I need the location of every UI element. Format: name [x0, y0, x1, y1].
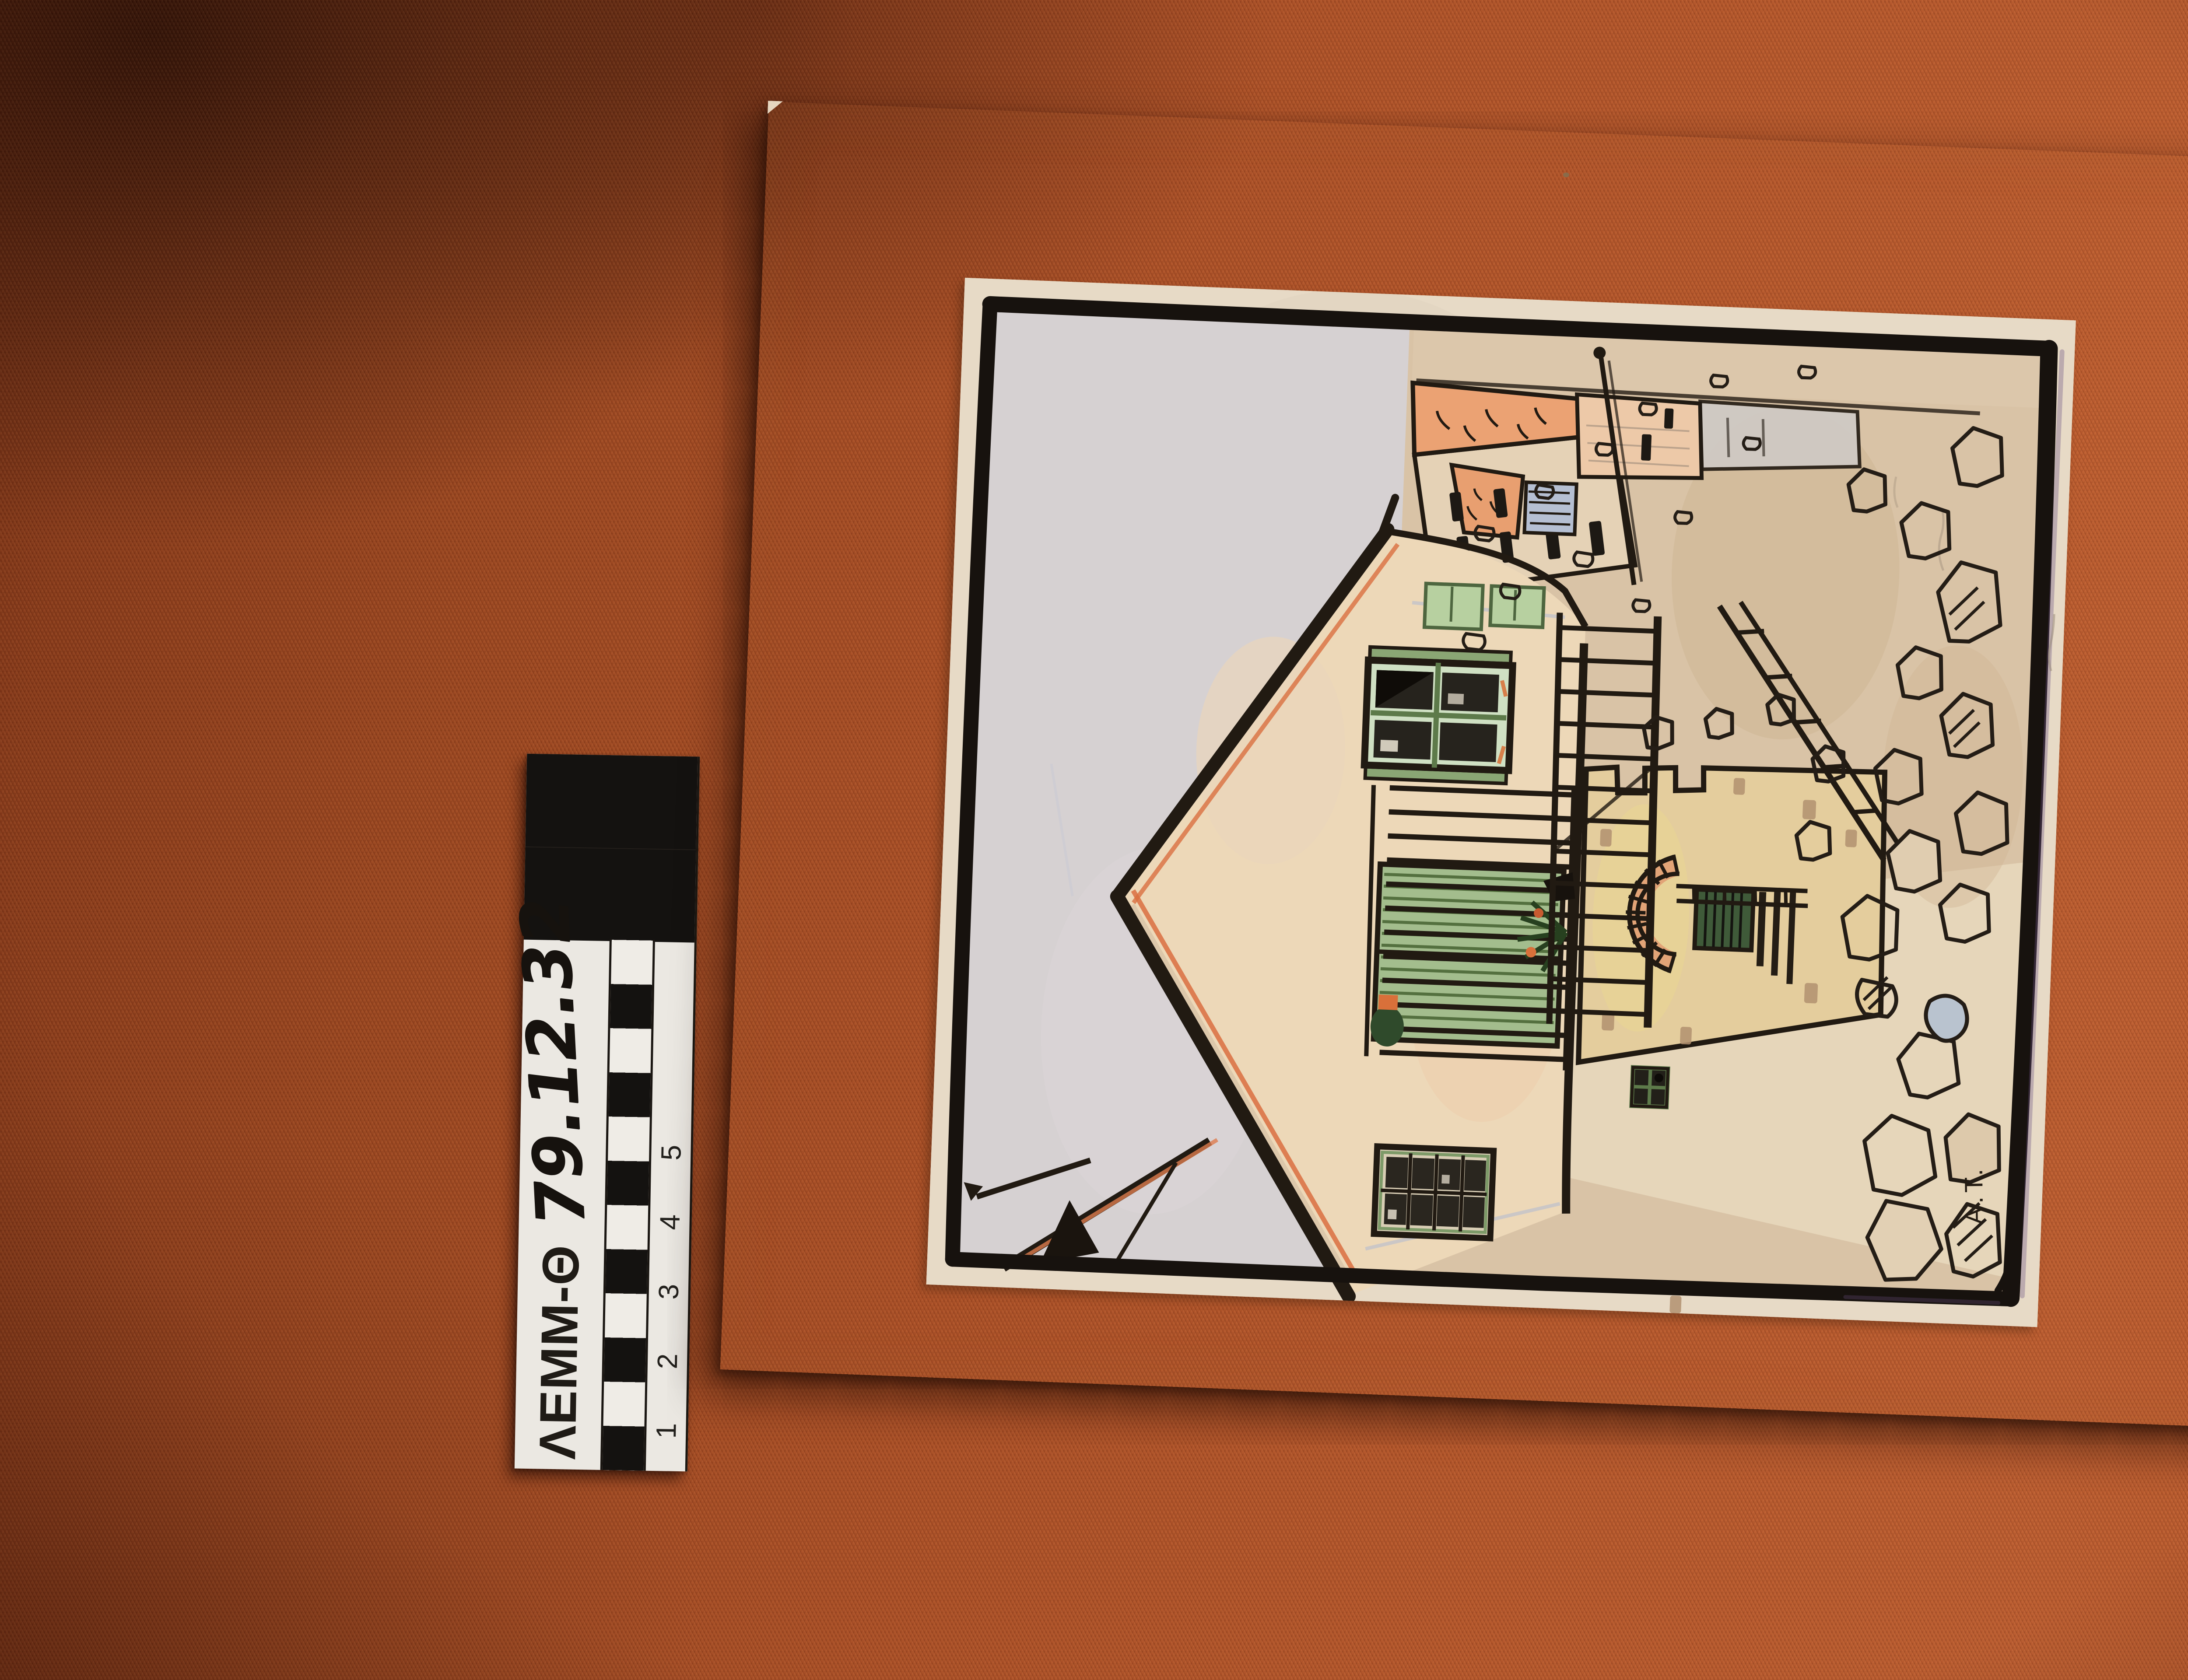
photo-vignette [0, 0, 2188, 1680]
museum-photo: ΛEMM-Θ 79.12.32 1 2 3 4 5 [0, 0, 2188, 1680]
